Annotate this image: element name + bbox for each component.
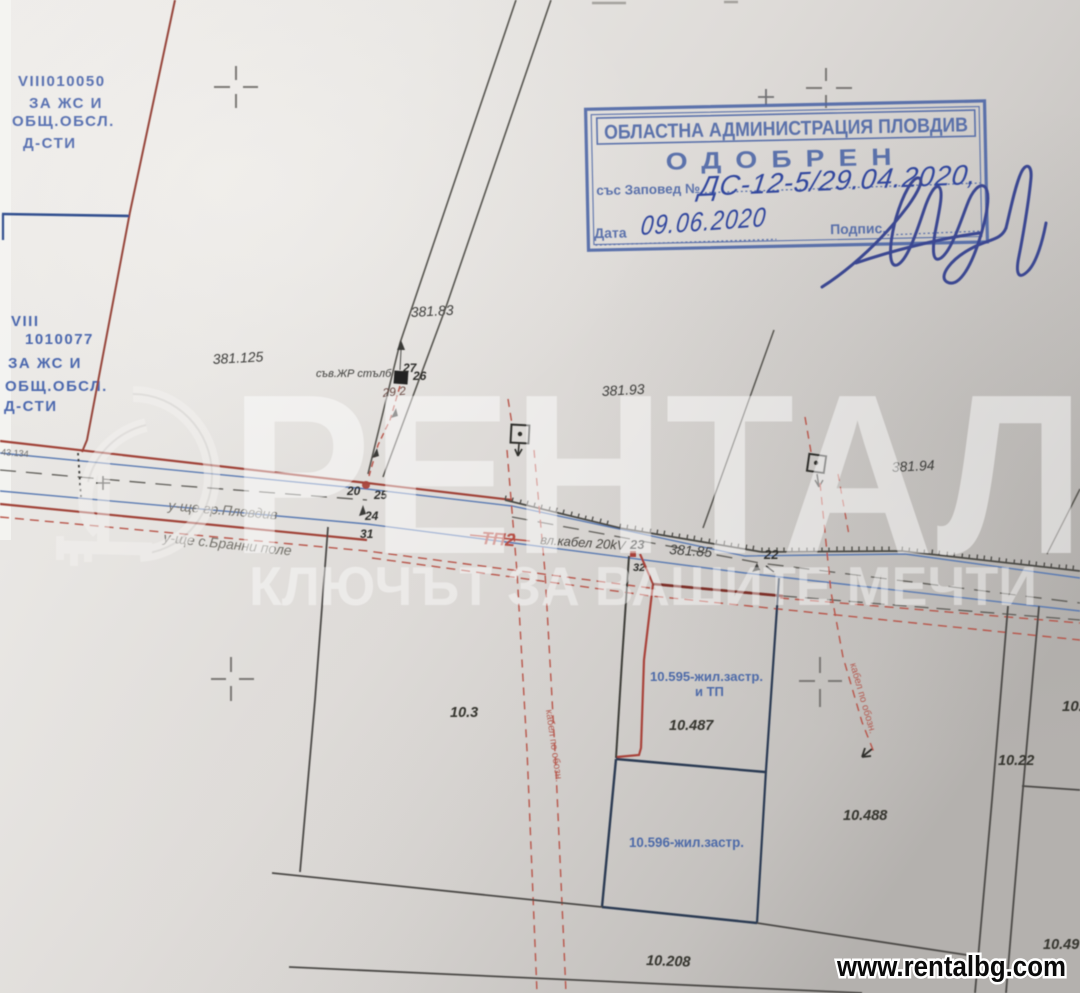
svg-text:10.22: 10.22 [998,753,1034,769]
svg-text:www.rentalbg.com: www.rentalbg.com [836,951,1066,983]
svg-text:ОБЩ.ОБСЛ.: ОБЩ.ОБСЛ. [5,378,108,395]
svg-text:10.3: 10.3 [450,705,478,721]
svg-text:ЗА ЖС И: ЗА ЖС И [8,355,82,372]
svg-text:43.134: 43.134 [1,447,29,459]
svg-text:Подпис.: Подпис. [830,220,886,237]
svg-text:VIII: VIII [11,313,40,330]
svg-text:VIII010050: VIII010050 [18,73,106,90]
svg-text:Дата: Дата [594,224,627,241]
svg-text:10.596-жил.застр.: 10.596-жил.застр. [629,835,744,850]
svg-text:ЗА ЖС И: ЗА ЖС И [29,95,103,112]
svg-text:10.487: 10.487 [669,718,714,734]
svg-text:и ТП: и ТП [695,684,724,699]
svg-text:10.595-жил.застр.: 10.595-жил.застр. [650,669,763,684]
svg-text:1010077: 1010077 [25,331,94,348]
svg-text:Д-СТИ: Д-СТИ [23,135,77,152]
svg-text:ОБЩ.ОБСЛ.: ОБЩ.ОБСЛ. [12,113,115,130]
svg-text:10.: 10. [1062,698,1080,715]
svg-text:10.208: 10.208 [646,953,692,971]
svg-text:10.488: 10.488 [843,808,888,824]
svg-text:със Заповед №: със Заповед № [596,181,700,198]
svg-text:КЛЮЧЪТ ЗА ВАШИТЕ МЕЧТИ: КЛЮЧЪТ ЗА ВАШИТЕ МЕЧТИ [249,555,1037,617]
svg-text:Д-СТИ: Д-СТИ [4,398,58,415]
